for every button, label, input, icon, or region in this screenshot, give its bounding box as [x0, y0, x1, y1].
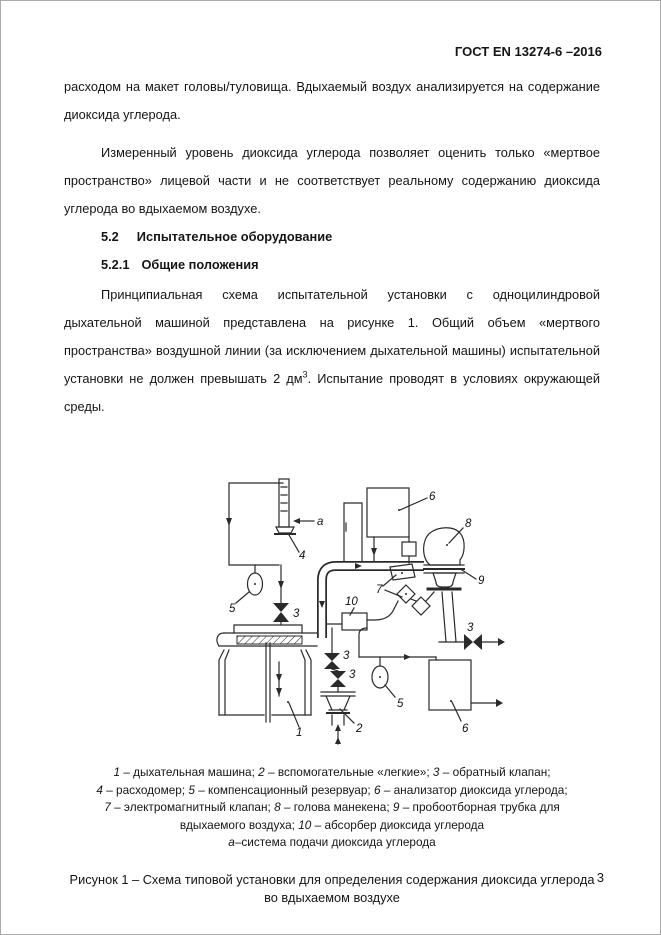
diagram-label-flowmeter: 4: [299, 550, 305, 562]
legend-line: 4 – расходомер; 5 – компенсационный резе…: [64, 782, 600, 800]
page-number: 3: [597, 870, 604, 885]
breathing-machine-symbol: [217, 633, 317, 727]
caption-line: Рисунок 1 – Схема типовой установки для …: [64, 871, 600, 889]
diagram-label-probe: 9: [478, 575, 485, 587]
diagram-label-reservoir: 5: [229, 603, 236, 615]
solenoid-valve-symbol: [383, 564, 434, 615]
figure-1: 4 a 5 3 1 3 3 2 10 6 8 9 7 5 3 6: [64, 470, 600, 907]
diagram-label-check-valve: 3: [467, 622, 474, 634]
co2-analyzer-symbol: [344, 488, 427, 563]
diagram-label-co2-supply: a: [317, 516, 323, 528]
legend-line: а–система подачи диоксида углерода: [64, 834, 600, 852]
section-heading-5-2-1: 5.2.1Общие положения: [101, 251, 600, 279]
document-content: расходом на макет головы/туловища. Вдыха…: [1, 73, 660, 907]
sampling-tube-symbol: [433, 573, 456, 587]
co2-analyzer-symbol: [429, 660, 471, 710]
diagram-label-solenoid: 7: [376, 584, 383, 596]
diagram-label-absorber: 10: [345, 596, 358, 608]
figure-legend: 1 – дыхательная машина; 2 – вспомогатель…: [64, 764, 600, 852]
legend-line: 7 – электромагнитный клапан; 8 – голова …: [64, 799, 600, 817]
diagram-label-analyzer: 6: [462, 723, 469, 735]
check-valve-symbol: [464, 634, 473, 650]
diagram-label-check-valve: 3: [343, 650, 350, 662]
caption-line: во вдыхаемом воздухе: [64, 889, 600, 907]
heading-number: 5.2.1: [101, 251, 129, 279]
heading-title: Общие положения: [141, 257, 258, 272]
diagram-label-machine: 1: [296, 727, 302, 739]
diagram-label-check-valve: 3: [293, 608, 300, 620]
legend-line: 1 – дыхательная машина; 2 – вспомогатель…: [64, 764, 600, 782]
diagram-label-head: 8: [465, 518, 472, 530]
legend-line: вдыхаемого воздуха; 10 – абсорбер диокси…: [64, 817, 600, 835]
heading-number: 5.2: [101, 223, 119, 251]
auxiliary-lungs-symbol: [321, 628, 355, 744]
check-valve-symbol: [324, 653, 340, 661]
figure-caption: Рисунок 1 – Схема типовой установки для …: [64, 871, 600, 907]
section-heading-5-2: 5.2Испытательное оборудование: [101, 223, 600, 251]
paragraph-continuation: расходом на макет головы/туловища. Вдыха…: [64, 73, 600, 129]
diagram-label-check-valve: 3: [349, 669, 356, 681]
diagram-label-analyzer: 6: [429, 491, 436, 503]
paragraph: Принципиальная схема испытательной устан…: [64, 281, 600, 421]
document-header: ГОСТ EN 13274-6 –2016: [1, 1, 660, 59]
document-page: ГОСТ EN 13274-6 –2016 расходом на макет …: [0, 0, 661, 935]
paragraph: Измеренный уровень диоксида углерода поз…: [64, 139, 600, 223]
check-valve-symbol: [273, 603, 289, 612]
co2-absorber-symbol: [327, 601, 398, 630]
heading-title: Испытательное оборудование: [137, 229, 332, 244]
diagram-label-lungs: 2: [355, 723, 363, 735]
diagram-label-reservoir: 5: [397, 698, 404, 710]
exhale-branch: [359, 628, 505, 721]
equipment-schematic: 4 a 5 3 1 3 3 2 10 6 8 9 7 5 3 6: [199, 470, 511, 750]
check-valve-symbol: [330, 671, 346, 679]
